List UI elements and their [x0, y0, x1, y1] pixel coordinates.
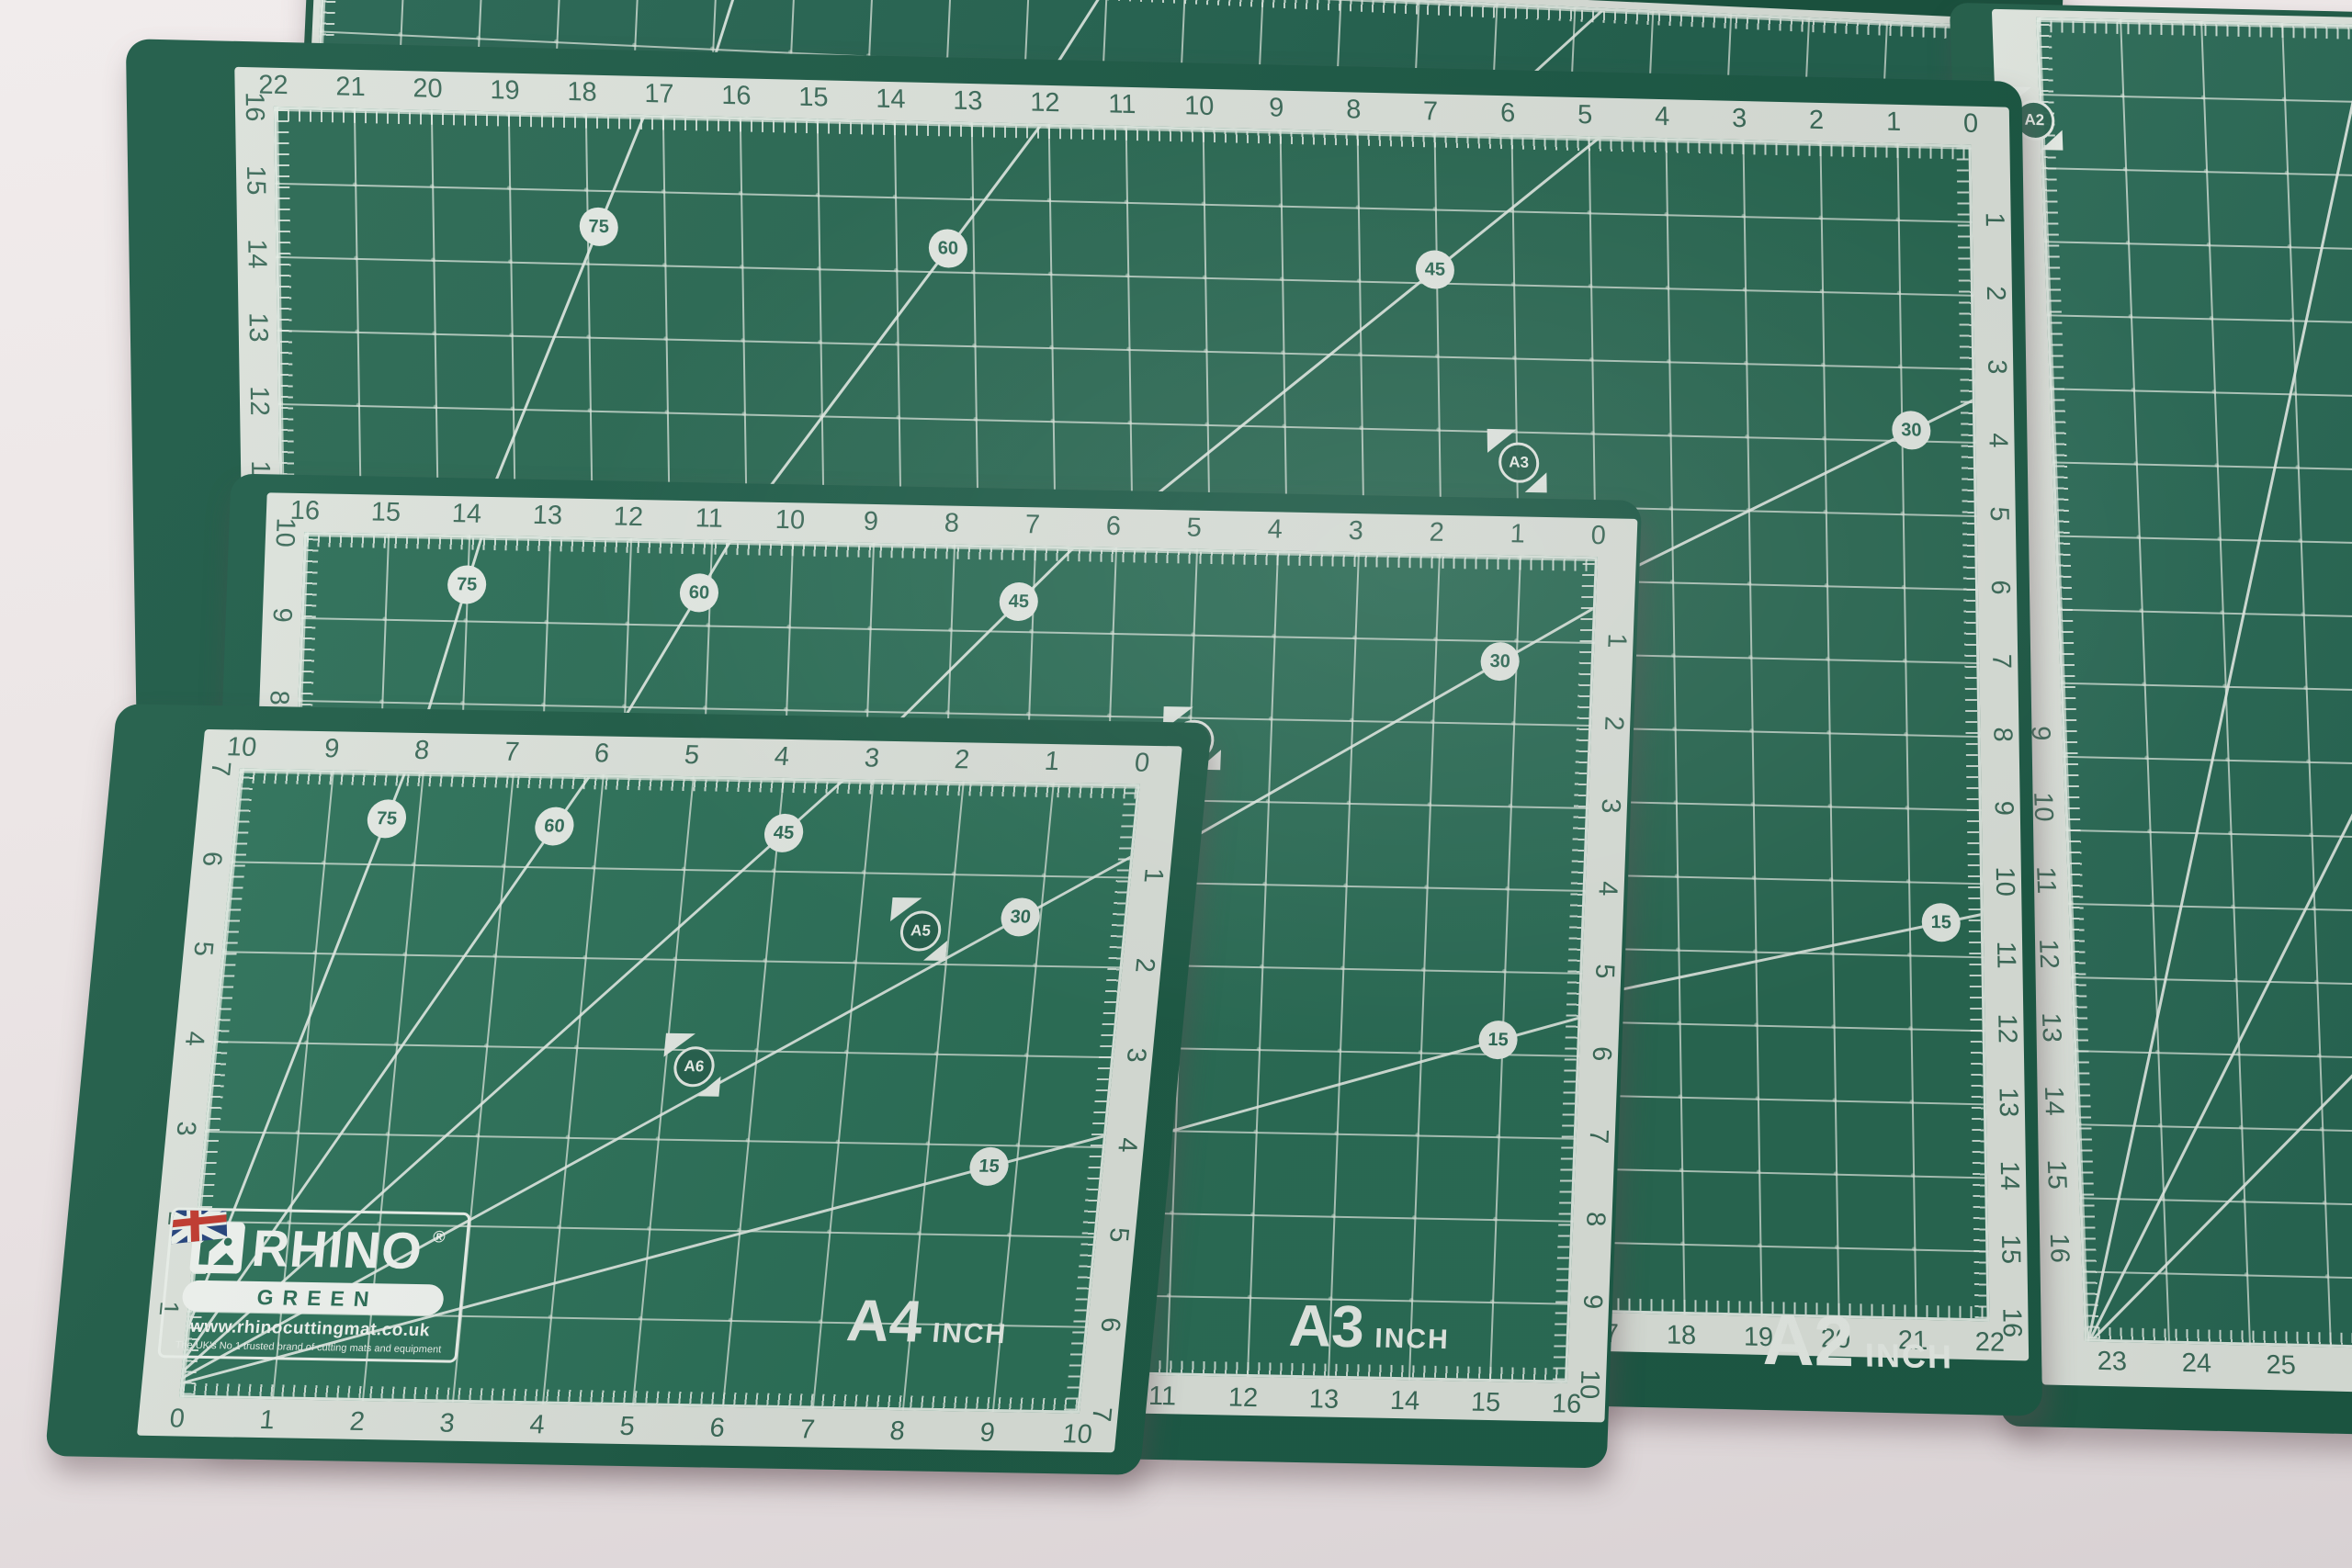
ruler-number: 4 — [1642, 103, 1682, 131]
mat-size-label: A4INCH — [844, 1286, 1012, 1357]
ruler-number: 25 — [2260, 1351, 2301, 1380]
ruler-number: 7 — [491, 738, 534, 766]
ruler-number: 10 — [769, 506, 810, 535]
ruler-number: 6 — [1094, 1304, 1125, 1345]
mat-size-text: A4 — [844, 1286, 926, 1355]
ruler-number: 2 — [941, 746, 984, 774]
ruler-number: 5 — [671, 741, 714, 770]
ruler-number: 2 — [335, 1408, 379, 1437]
ruler-number: 16 — [241, 86, 269, 128]
ruler-number: 10 — [1991, 861, 2019, 902]
ruler-number: 12 — [1993, 1009, 2021, 1050]
ruler-number: 10 — [1179, 92, 1219, 120]
ruler-number: 9 — [311, 735, 354, 763]
ruler-number: 6 — [695, 1414, 739, 1442]
angle-marker-60: 60 — [679, 573, 719, 613]
ruler-number: 18 — [561, 78, 602, 107]
ruler-number: 6 — [581, 739, 624, 768]
ruler-number: 6 — [1587, 1033, 1616, 1075]
ruler-number: 24 — [2176, 1349, 2217, 1378]
ruler-number: 3 — [425, 1409, 469, 1438]
ruler-number: 14 — [446, 500, 487, 528]
ruler-number: 3 — [1983, 346, 2011, 388]
ruler-number: 5 — [605, 1413, 649, 1441]
ruler-number: 15 — [365, 498, 406, 526]
ruler-number: 15 — [2042, 1154, 2072, 1195]
ruler-number: 3 — [1335, 517, 1376, 546]
ruler-number: 15 — [1465, 1389, 1507, 1417]
ruler-number: 19 — [484, 76, 525, 105]
angle-marker-75: 75 — [579, 207, 618, 246]
ruler-number: 4 — [761, 742, 804, 771]
ruler-number: 1 — [1137, 855, 1169, 896]
mat-size-text: A3 — [1288, 1292, 1366, 1361]
ruler-number: 8 — [931, 509, 972, 537]
angle-marker-45: 45 — [763, 814, 805, 853]
ruler-number: 0 — [155, 1404, 198, 1433]
ruler-number: 7 — [1086, 1394, 1117, 1435]
angle-marker-75: 75 — [366, 799, 408, 839]
angle-guide-line — [2086, 17, 2352, 1345]
ruler-number: 11 — [688, 504, 729, 533]
ruler-number: 3 — [170, 1108, 201, 1148]
mat-size-text: A2 — [1761, 1298, 1854, 1383]
ruler-number: 16 — [716, 82, 756, 110]
ruler-number: 1 — [1980, 199, 2008, 241]
ruler-number: 14 — [870, 85, 910, 114]
angle-marker-15: 15 — [968, 1147, 1011, 1187]
ruler-number: 7 — [786, 1416, 829, 1444]
ruler-number: 2 — [1599, 703, 1628, 744]
grid-area — [2036, 17, 2352, 1351]
series-badge: GREEN — [181, 1280, 445, 1316]
ruler-number: 4 — [1593, 868, 1623, 909]
ruler-number: 3 — [1596, 785, 1625, 827]
paper-size-marker-a5: A5 — [899, 910, 943, 952]
ruler-number: 9 — [966, 1419, 1009, 1448]
ruler-number: 7 — [1410, 97, 1451, 126]
ruler-number: 12 — [2034, 933, 2064, 975]
ruler-number: 1 — [1873, 107, 1914, 136]
ruler-number: 4 — [1984, 420, 2012, 461]
ruler-number: 17 — [639, 80, 679, 108]
ruler-number: 10 — [1575, 1364, 1604, 1405]
ruler-number: 14 — [243, 233, 271, 275]
ruler-number: 11 — [2031, 860, 2061, 901]
ruler-number: 4 — [178, 1019, 209, 1059]
ruler-number: 8 — [1333, 96, 1374, 124]
ruler-number: 13 — [1304, 1385, 1345, 1414]
ruler-number: 3 — [851, 744, 894, 773]
ruler-number: 1 — [1497, 520, 1538, 548]
angle-marker-30: 30 — [1000, 897, 1042, 937]
ruler-number: 4 — [1254, 515, 1295, 544]
ruler-number: 8 — [876, 1417, 919, 1446]
mat-size-label: A2INCH — [1761, 1298, 1953, 1386]
angle-marker-15: 15 — [1921, 903, 1961, 942]
paper-size-marker-a6: A6 — [672, 1046, 716, 1088]
ruler-number: 2 — [1416, 518, 1457, 547]
ruler-number: 13 — [947, 86, 988, 115]
ruler-number: 18 — [1661, 1321, 1702, 1349]
ruler-number: 10 — [270, 512, 300, 553]
ruler-number: 20 — [407, 74, 447, 103]
angle-guide-line — [2086, 17, 2352, 1346]
mat-size-label: A3INCH — [1288, 1292, 1452, 1362]
ruler-number: 2 — [1129, 945, 1160, 986]
ruler-number: 1 — [245, 1406, 288, 1435]
ruler-number: 11 — [1992, 934, 2020, 976]
paper-size-marker-a3: A3 — [1498, 442, 1540, 483]
ruler-number: 3 — [1120, 1034, 1151, 1075]
ruler-number: 13 — [2037, 1007, 2066, 1048]
angle-marker-60: 60 — [929, 229, 968, 268]
angle-marker-45: 45 — [999, 582, 1039, 622]
ruler-number: 9 — [1989, 787, 2018, 829]
angle-marker-45: 45 — [1416, 250, 1455, 289]
ruler-number: 6 — [1092, 513, 1134, 541]
ruler-number: 12 — [1223, 1383, 1264, 1412]
ruler-number: 5 — [187, 929, 219, 969]
ruler-number: 2 — [1796, 106, 1837, 134]
ruler-number: 13 — [1994, 1082, 2022, 1123]
ruler-number: 1 — [1031, 748, 1074, 776]
mat-unit-text: INCH — [1865, 1336, 1954, 1376]
angle-marker-30: 30 — [1480, 642, 1521, 682]
ruler-number: 14 — [2040, 1080, 2069, 1122]
tick-marks — [325, 0, 2046, 43]
ruler-number: 15 — [793, 84, 833, 112]
ruler-number: 12 — [607, 502, 649, 531]
ruler-number: 4 — [1112, 1124, 1143, 1165]
ruler-number: 16 — [1997, 1303, 2026, 1344]
ruler-number: 7 — [1012, 511, 1053, 539]
ruler-number: 23 — [2091, 1348, 2132, 1376]
paper-size-label: A3 — [1498, 442, 1540, 483]
ruler-number: 7 — [1584, 1116, 1613, 1157]
ruler-number: 6 — [1487, 99, 1528, 128]
ruler-number: 11 — [1102, 90, 1142, 118]
tick-marks — [2039, 20, 2352, 41]
ruler-number: 8 — [1988, 714, 2017, 755]
ruler-number: 5 — [1590, 951, 1620, 992]
ruler-number: 12 — [245, 380, 274, 422]
ruler-number: 5 — [1565, 101, 1605, 130]
ruler-number: 4 — [515, 1411, 559, 1439]
ruler-number: 5 — [1173, 513, 1215, 542]
angle-marker-15: 15 — [1478, 1021, 1519, 1060]
angle-guide-line — [2086, 17, 2352, 1345]
brand-tagline: The UK's No.1 trusted brand of cutting m… — [172, 1339, 445, 1355]
ruler-number: 9 — [1256, 94, 1296, 122]
ruler-number: 9 — [267, 594, 297, 636]
ruler-number: 9 — [1577, 1281, 1607, 1323]
mat-unit-text: INCH — [1374, 1324, 1451, 1357]
ruler-number: 3 — [1719, 105, 1759, 133]
angle-marker-30: 30 — [1892, 411, 1931, 450]
ruler-number: 6 — [196, 839, 227, 879]
mat-unit-text: INCH — [931, 1318, 1009, 1350]
angle-marker-60: 60 — [533, 807, 575, 846]
ruler-number: 8 — [401, 737, 444, 765]
cutting-mat-a4: 7560453015A5A610987654321001234567891076… — [45, 704, 1213, 1475]
brand-name: RHINO — [250, 1223, 425, 1277]
ruler-number: 7 — [1987, 640, 2016, 682]
ruler-number: 14 — [1996, 1156, 2024, 1197]
ruler-number: 0 — [1951, 109, 1991, 138]
ruler-number: 6 — [1986, 567, 2015, 608]
brand-logo-panel: RHINO®GREENwww.rhinocuttingmat.co.ukThe … — [157, 1207, 471, 1362]
ruler-number: 8 — [1581, 1199, 1611, 1240]
ruler-number: 16 — [2045, 1227, 2075, 1269]
brand-website: www.rhinocuttingmat.co.uk — [173, 1316, 447, 1341]
ruler-number: 5 — [1984, 493, 2013, 535]
angle-marker-75: 75 — [447, 565, 487, 604]
photo-cutting-mats: A22021222324259101112131415167560453015A… — [0, 0, 2352, 1568]
ruler-number: 9 — [850, 507, 891, 536]
ruler-number: 13 — [526, 502, 568, 530]
ruler-number: 15 — [242, 160, 270, 201]
ruler-number: 15 — [1996, 1229, 2025, 1270]
ruler-number: 21 — [330, 73, 370, 101]
ruler-number: 12 — [1024, 88, 1065, 117]
ruler-number: 0 — [1121, 749, 1164, 777]
registered-mark: ® — [432, 1227, 446, 1247]
ruler-number: 14 — [1385, 1387, 1426, 1416]
ruler-number: 13 — [243, 307, 272, 348]
ruler-number: 5 — [1102, 1214, 1134, 1255]
ruler-number: 0 — [1577, 522, 1619, 550]
ruler-number: 7 — [205, 749, 236, 789]
ruler-number: 1 — [1602, 620, 1632, 661]
ruler-number: 2 — [1982, 273, 2010, 314]
